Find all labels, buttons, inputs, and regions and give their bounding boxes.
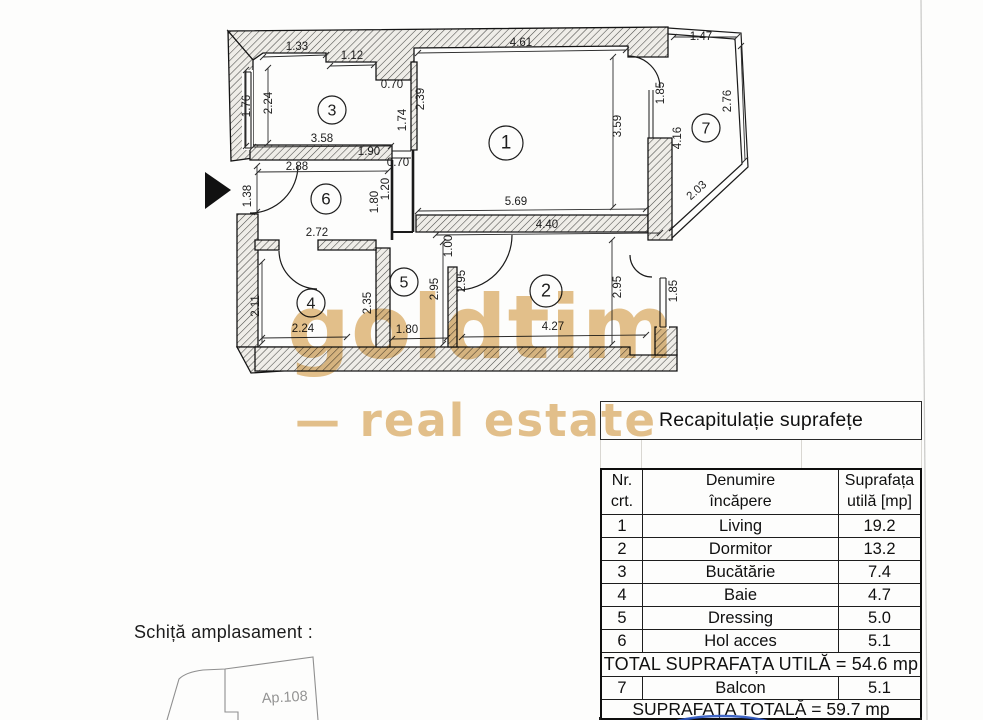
row-area: 13.2: [838, 538, 920, 560]
dimension-label: 1.20: [380, 178, 392, 200]
dimension-label: 2.88: [286, 161, 308, 173]
watermark-brand: goldtim: [287, 284, 675, 372]
room-number: 3: [328, 103, 337, 120]
row-nr: 4: [602, 584, 642, 606]
room-number: 6: [321, 190, 330, 209]
row-name: Dressing: [642, 607, 838, 629]
dimension-label: 4.61: [510, 37, 532, 49]
row-area: 5.1: [838, 677, 920, 699]
dimension-label: 1.85: [655, 82, 667, 104]
entrance-arrow: [205, 172, 231, 209]
row-nr: 2: [602, 538, 642, 560]
header-line: Suprafața: [845, 471, 914, 492]
header-line: încăpere: [709, 492, 771, 513]
dimension-label: 4.16: [672, 127, 684, 149]
row-nr: 1: [602, 515, 642, 537]
total-all-row: SUPRAFAȚA TOTALĂ = 59.7 mp: [602, 699, 920, 718]
dimension-label: 1.00: [443, 235, 455, 257]
site-apartment-label: Ap.108: [261, 689, 308, 707]
row-area: 7.4: [838, 561, 920, 583]
entrance-arrow-triangle: [205, 172, 231, 209]
header-name: Denumire încăpere: [642, 470, 838, 514]
dimension-label: 2.39: [415, 88, 427, 110]
row-area: 5.1: [838, 630, 920, 652]
row-nr: 7: [602, 677, 642, 699]
dimension-label: 2.11: [250, 295, 262, 317]
dimension-label: 1.38: [242, 185, 254, 207]
row-nr: 5: [602, 607, 642, 629]
row-name: Baie: [642, 584, 838, 606]
header-line: Denumire: [706, 471, 775, 492]
area-summary-table: Recapitulație suprafețe Nr. crt. Denumir…: [600, 401, 922, 720]
dimension-label: 2.24: [263, 91, 275, 114]
header-nr: Nr. crt.: [602, 470, 642, 514]
dimension-line: [263, 55, 326, 57]
dimension-label: 4.40: [536, 219, 558, 231]
dimension-label: 1.74: [397, 108, 409, 131]
dimension-label: 1.80: [369, 191, 381, 213]
table-ghost-row: [600, 440, 922, 468]
table-row: 5 Dressing 5.0: [602, 606, 920, 629]
row-name: Dormitor: [642, 538, 838, 560]
total-useful-row: TOTAL SUPRAFAȚA UTILĂ = 54.6 mp: [602, 652, 920, 676]
dimension-label: 2.76: [722, 90, 734, 112]
table-row: 6 Hol acces 5.1: [602, 629, 920, 652]
dimension-line: [436, 233, 660, 235]
table-row: 2 Dormitor 13.2: [602, 537, 920, 560]
table-row: 1 Living 19.2: [602, 514, 920, 537]
row-name: Bucătărie: [642, 561, 838, 583]
dimension-label: 2.72: [306, 227, 328, 239]
table-row: 3 Bucătărie 7.4: [602, 560, 920, 583]
row-name: Living: [642, 515, 838, 537]
door-arc-group: [250, 56, 660, 290]
table-body: Nr. crt. Denumire încăpere Suprafața uti…: [600, 468, 922, 720]
dimension-label: 1.33: [286, 41, 308, 53]
dimension-label: 0.70: [387, 157, 409, 169]
row-nr: 6: [602, 630, 642, 652]
header-line: crt.: [611, 492, 633, 513]
dimension-line: [258, 171, 388, 172]
row-area: 4.7: [838, 584, 920, 606]
header-line: Nr.: [612, 471, 632, 492]
ghost-divider: [641, 440, 642, 468]
dimension-label: 0.70: [381, 79, 403, 91]
table-title: Recapitulație suprafețe: [600, 401, 922, 440]
header-area: Suprafața utilă [mp]: [838, 470, 920, 514]
dimension-label: 3.59: [612, 115, 624, 137]
dimension-label: 5.69: [505, 196, 527, 208]
dimension-label: 1.12: [341, 50, 363, 62]
dimension-label: 1.47: [690, 31, 712, 43]
row-nr: 3: [602, 561, 642, 583]
header-line: utilă [mp]: [847, 492, 912, 513]
row-name: Balcon: [642, 677, 838, 699]
table-row-balcony: 7 Balcon 5.1: [602, 676, 920, 699]
dimension-line: [330, 65, 374, 66]
row-name: Hol acces: [642, 630, 838, 652]
room-number: 7: [702, 121, 711, 138]
row-area: 5.0: [838, 607, 920, 629]
table-row: 4 Baie 4.7: [602, 583, 920, 606]
dimension-label: 3.58: [311, 133, 333, 145]
row-area: 19.2: [838, 515, 920, 537]
table-header-row: Nr. crt. Denumire încăpere Suprafața uti…: [602, 470, 920, 514]
dimension-line: [418, 209, 646, 211]
dimension-line: [418, 50, 626, 53]
ghost-divider: [801, 440, 802, 468]
site-sketch-caption: Schiță amplasament :: [134, 622, 313, 643]
dimension-label: 1.76: [241, 95, 253, 117]
room-number: 1: [501, 133, 512, 154]
dimension-label: 1.90: [358, 146, 380, 158]
dimension-label: 2.03: [685, 179, 710, 203]
